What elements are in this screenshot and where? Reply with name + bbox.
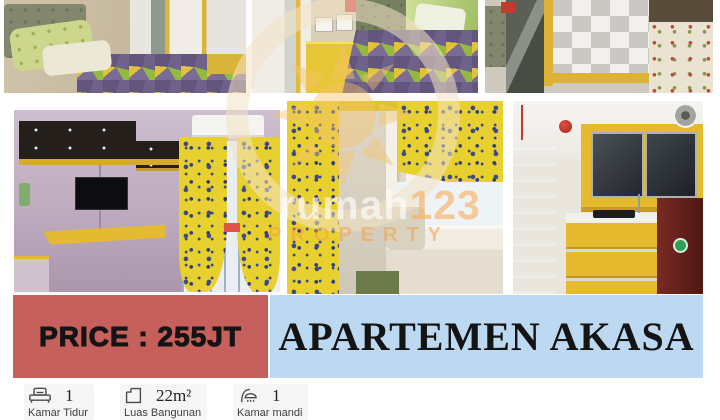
bedroom-label: Kamar Tidur [28, 407, 88, 419]
photo-bedroom-1 [4, 0, 246, 93]
stat-bathrooms: 1 Kamar mandi [233, 384, 308, 420]
yellow-rail [553, 73, 649, 83]
price-banner: PRICE : 255JT [13, 295, 268, 378]
wall-fan [673, 103, 698, 128]
bathroom-count: 1 [272, 387, 281, 404]
cooktop [593, 210, 635, 218]
bedroom-count: 1 [65, 387, 74, 404]
air-conditioner [192, 115, 264, 138]
smoked-glass-door [591, 132, 644, 197]
photo-bedroom-3 [485, 0, 713, 93]
green-bottle [19, 183, 30, 207]
beige-pillow [386, 207, 425, 249]
wall-cabinet [19, 121, 136, 163]
mirror-panel [506, 0, 545, 93]
yellow-curtain [287, 101, 342, 294]
red-object [224, 223, 240, 232]
yellow-shelf-edge [19, 159, 195, 164]
area-value: 22m² [156, 387, 191, 404]
stat-area: 22m² Luas Bangunan [120, 384, 207, 420]
photo-window-nook [287, 101, 503, 294]
photo-living-room [14, 110, 280, 292]
floor-area-icon [124, 386, 143, 405]
smoked-glass-door [645, 132, 698, 197]
bed-triangle-bedding [342, 30, 478, 93]
price-text: PRICE : 255JT [39, 321, 242, 353]
yellow-nightstand [207, 54, 246, 74]
glass-panel [339, 101, 387, 294]
red-object [501, 2, 515, 13]
stats-strip: 1 Kamar Tidur 22m² Luas Bangunan [0, 378, 720, 420]
yellow-valance [339, 101, 397, 111]
yellow-curtain [179, 137, 227, 292]
area-label: Luas Bangunan [124, 407, 201, 419]
wardrobe [130, 0, 246, 60]
bed-icon [28, 387, 52, 404]
tufted-headboard [485, 6, 506, 67]
title-banner: APARTEMEN AKASA [270, 295, 703, 378]
shower-icon [237, 386, 259, 404]
bathroom-label: Kamar mandi [237, 407, 302, 419]
floral-bedding [649, 22, 713, 93]
wardrobe-doors [553, 0, 649, 74]
listing-flyer: rumah123 PROPERTY PRICE : 255JT APARTEME… [0, 0, 720, 420]
door [513, 147, 555, 294]
light-switch [336, 14, 354, 31]
fridge-sticker [673, 238, 688, 253]
light-switch [315, 17, 333, 32]
photo-kitchen [513, 101, 703, 294]
photo-bedroom-2 [252, 0, 478, 93]
wall-tv [75, 177, 128, 210]
red-sprinkler-pipe [521, 105, 523, 140]
green-cushion [356, 271, 399, 294]
side-desk [14, 256, 49, 292]
yellow-curtain [237, 137, 280, 292]
faucet [638, 194, 640, 213]
tufted-headboard [356, 0, 410, 32]
dark-wall [649, 0, 713, 24]
yellow-frame [544, 0, 553, 86]
wardrobe [252, 0, 311, 93]
stat-bedrooms: 1 Kamar Tidur [24, 384, 94, 420]
apartment-title-text: APARTEMEN AKASA [278, 313, 694, 360]
fire-alarm-bell [559, 120, 572, 133]
